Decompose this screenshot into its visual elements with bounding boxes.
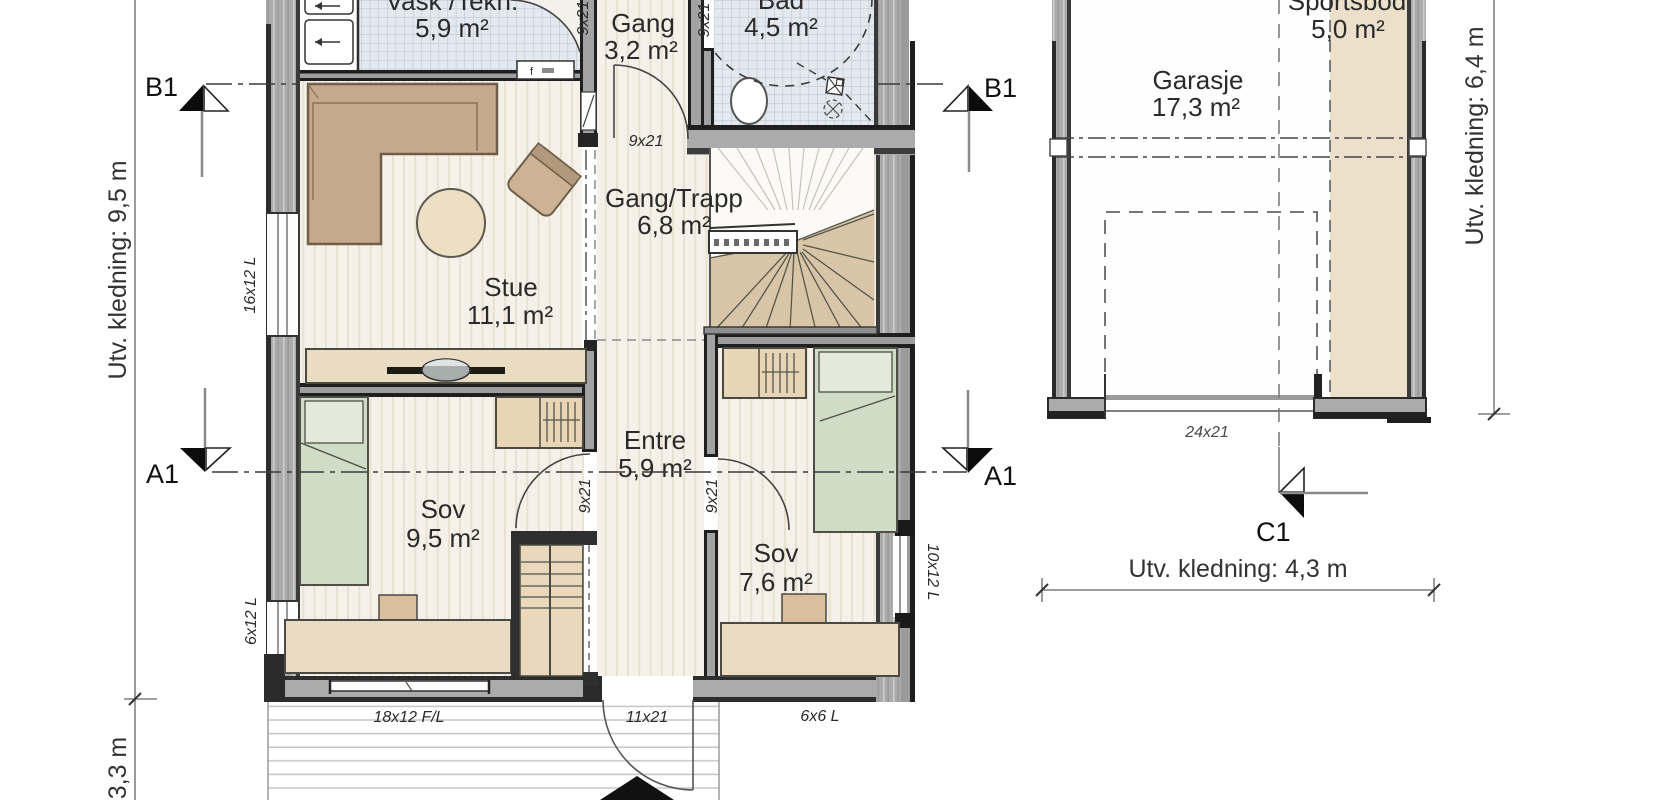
- svg-text:B1: B1: [984, 73, 1017, 103]
- svg-text:6x12 L: 6x12 L: [243, 597, 260, 645]
- svg-text:C1: C1: [1256, 517, 1291, 547]
- svg-text:7,6 m²: 7,6 m²: [739, 567, 813, 597]
- svg-text:24x21: 24x21: [1184, 424, 1229, 441]
- svg-text:B1: B1: [145, 72, 178, 102]
- svg-text:Gang: Gang: [611, 8, 675, 38]
- svg-text:9x21: 9x21: [577, 479, 594, 514]
- svg-text:6,8 m²: 6,8 m²: [637, 210, 711, 240]
- svg-text:3,2 m²: 3,2 m²: [604, 35, 678, 65]
- svg-text:3,3 m: 3,3 m: [104, 737, 132, 800]
- svg-text:Entre: Entre: [624, 425, 686, 455]
- svg-text:Gang/Trapp: Gang/Trapp: [605, 183, 743, 213]
- svg-text:17,3 m²: 17,3 m²: [1152, 92, 1240, 122]
- svg-text:18x12 F/L: 18x12 F/L: [373, 709, 444, 726]
- svg-text:11x21: 11x21: [626, 709, 668, 726]
- svg-text:5,9 m²: 5,9 m²: [618, 453, 692, 483]
- svg-text:5,9 m²: 5,9 m²: [415, 13, 489, 43]
- svg-text:4,5 m²: 4,5 m²: [744, 12, 818, 42]
- svg-text:9,5 m²: 9,5 m²: [406, 523, 480, 553]
- svg-text:A1: A1: [146, 459, 179, 489]
- svg-text:Garasje: Garasje: [1152, 65, 1243, 95]
- svg-text:Utv. kledning: 4,3 m: Utv. kledning: 4,3 m: [1128, 555, 1347, 583]
- svg-text:10x12 L: 10x12 L: [924, 544, 941, 601]
- svg-text:5,0 m²: 5,0 m²: [1311, 14, 1385, 44]
- svg-text:9x21: 9x21: [704, 479, 721, 514]
- svg-text:9x21: 9x21: [629, 133, 664, 150]
- svg-text:A1: A1: [984, 461, 1017, 491]
- svg-text:Stue: Stue: [484, 272, 538, 302]
- svg-text:Sov: Sov: [754, 538, 799, 568]
- svg-text:Utv. kledning: 9,5 m: Utv. kledning: 9,5 m: [104, 160, 132, 379]
- svg-text:16x12 L: 16x12 L: [242, 257, 259, 314]
- svg-text:9x21: 9x21: [696, 3, 713, 38]
- svg-text:11,1 m²: 11,1 m²: [467, 300, 554, 330]
- svg-text:Sov: Sov: [421, 494, 466, 524]
- svg-text:6x6 L: 6x6 L: [800, 708, 839, 725]
- svg-text:Utv. kledning: 6,4 m: Utv. kledning: 6,4 m: [1461, 26, 1489, 245]
- svg-text:9x21: 9x21: [575, 1, 592, 36]
